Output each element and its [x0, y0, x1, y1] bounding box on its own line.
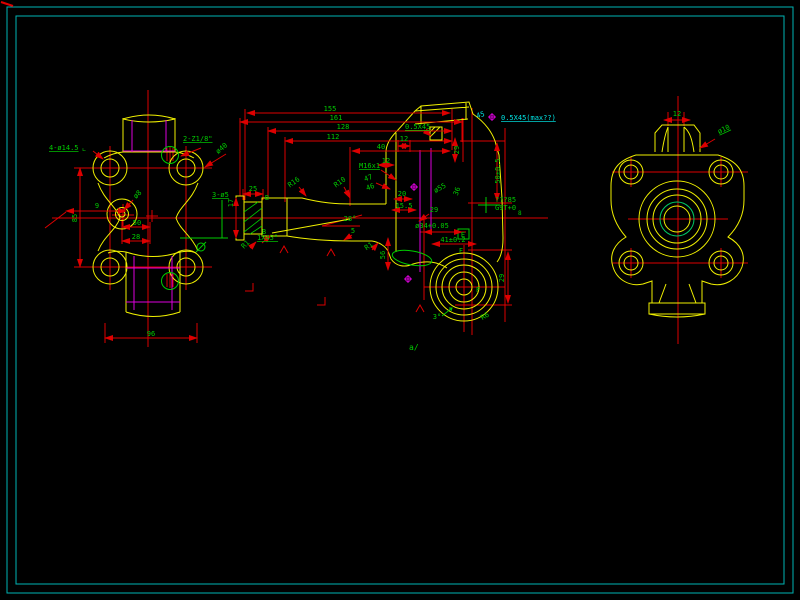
- annotation-20: B: [265, 194, 269, 202]
- annotation-44: 1X45°: [257, 234, 278, 242]
- annotation-50: 29: [498, 274, 506, 282]
- annotation-51: 56: [379, 251, 387, 259]
- annotation-8: 28: [132, 233, 140, 241]
- annotation-39: E: [461, 231, 465, 239]
- annotation-31: 50±0.5: [494, 158, 502, 183]
- annotation-41: F: [476, 286, 480, 294]
- annotation-30: 29: [453, 146, 461, 154]
- annotation-52: ???85: [495, 196, 516, 204]
- annotation-14: 112: [327, 133, 340, 141]
- annotation-35: 15.5: [396, 202, 413, 210]
- drawing-canvas[interactable]: 4-ø14.5∟2-Z1/8"ø40985ø85028963-ø51551611…: [0, 0, 800, 600]
- annotation-37: ø34+0.05: [415, 222, 449, 230]
- annotation-9: 96: [147, 330, 155, 338]
- annotation-11: 155: [324, 105, 337, 113]
- annotation-10: 3-ø5: [212, 191, 229, 199]
- canvas-background: [0, 0, 800, 600]
- annotation-12: 161: [330, 114, 343, 122]
- annotation-1: ∟: [82, 147, 86, 154]
- annotation-27: 0.5X45: [405, 123, 430, 131]
- annotation-16: 12: [400, 135, 408, 143]
- annotation-13: 128: [337, 123, 350, 131]
- annotation-34: 20: [398, 190, 406, 198]
- annotation-22: M16x1: [359, 162, 380, 170]
- annotation-40: F: [459, 247, 463, 255]
- annotation-2: 2-Z1/8": [183, 135, 213, 143]
- annotation-54: 8: [518, 210, 522, 217]
- annotation-55: 12: [673, 110, 681, 118]
- annotation-5: 85: [71, 214, 79, 222]
- annotation-15: 40: [377, 143, 385, 151]
- annotation-7: 50: [133, 219, 141, 227]
- annotation-43: 5: [351, 227, 355, 235]
- annotation-17: 12: [382, 157, 390, 165]
- annotation-49: a/: [409, 343, 419, 352]
- annotation-47: 3°: [433, 313, 441, 321]
- annotation-18: 25: [249, 185, 257, 193]
- annotation-19: 17: [227, 199, 235, 207]
- annotation-4: 9: [95, 202, 99, 210]
- annotation-0: 4-ø14.5: [49, 144, 79, 152]
- annotation-36: 29: [430, 206, 438, 214]
- annotation-53: G9T+0: [495, 204, 516, 212]
- annotation-29: 0.5X45(max??): [501, 114, 556, 122]
- annotation-42: 28°: [344, 215, 357, 223]
